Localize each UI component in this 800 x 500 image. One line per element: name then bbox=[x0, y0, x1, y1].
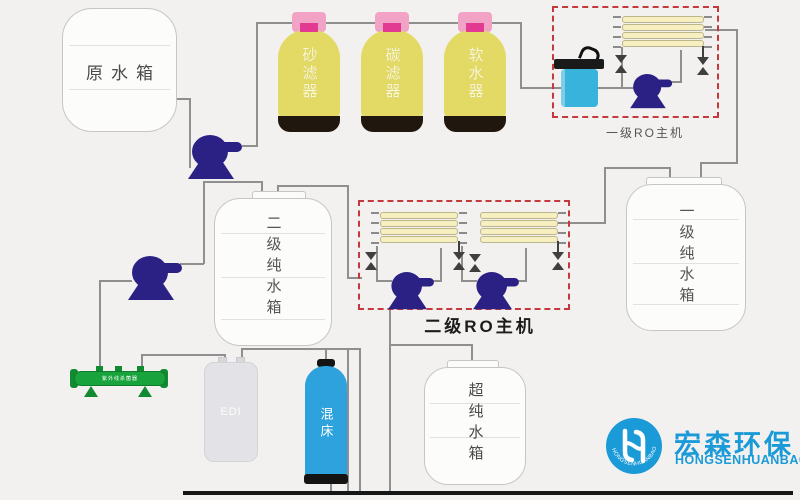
stage2-pure-tank-label: 二级纯水箱 bbox=[263, 215, 284, 320]
pipe bbox=[520, 22, 522, 88]
filter-cap bbox=[458, 12, 492, 32]
membrane-fitting bbox=[704, 16, 712, 48]
pipe bbox=[440, 248, 442, 281]
raw-water-tank-label: 原水箱 bbox=[63, 59, 176, 84]
mixed-bed-bottom-cap bbox=[304, 474, 348, 484]
ro1-membrane-bank bbox=[622, 16, 704, 47]
raw-water-tank: 原水箱 bbox=[62, 8, 177, 132]
carbon-filter-label: 碳滤器 bbox=[382, 47, 403, 101]
drain-line bbox=[183, 491, 793, 495]
pipe bbox=[141, 354, 225, 356]
valve-icon bbox=[468, 254, 482, 272]
valve-icon bbox=[551, 252, 565, 270]
softener-vessel: 软水器 bbox=[444, 12, 506, 132]
raw-water-pump bbox=[188, 135, 246, 179]
tank-seam bbox=[69, 89, 171, 90]
logo-mark: HONGSENHUANBAO bbox=[604, 416, 664, 476]
valve-icon bbox=[696, 57, 710, 75]
stage1-pure-tank: 一级纯水箱 bbox=[626, 184, 746, 331]
ro2-high-pressure-pump-b bbox=[473, 272, 522, 309]
pipe bbox=[277, 185, 349, 187]
stage1-pure-tank-label: 一级纯水箱 bbox=[676, 203, 697, 308]
pipe bbox=[566, 222, 606, 224]
ultra-pure-tank-label: 超纯水箱 bbox=[465, 382, 486, 466]
ultra-pure-tank: 超纯水箱 bbox=[424, 367, 526, 485]
pipe bbox=[99, 280, 101, 370]
ro-stage1-label: 一级RO主机 bbox=[595, 124, 695, 141]
filter-base bbox=[444, 116, 506, 132]
valve-icon bbox=[452, 252, 466, 270]
ro1-high-pressure-pump bbox=[630, 74, 675, 108]
pipe bbox=[203, 181, 205, 264]
pipe bbox=[525, 248, 527, 281]
mixed-bed-label: 混床 bbox=[317, 407, 336, 441]
pipe bbox=[256, 23, 258, 147]
carbon-filter-vessel: 碳滤器 bbox=[361, 12, 423, 132]
pipe bbox=[736, 29, 738, 164]
membrane-fitting bbox=[613, 16, 621, 48]
edi-label: EDI bbox=[220, 406, 241, 418]
stage2-pure-tank: 二级纯水箱 bbox=[214, 198, 332, 346]
uv-sterilizer-label: 紫外线杀菌器 bbox=[102, 375, 138, 382]
membrane-fitting bbox=[558, 212, 566, 244]
filter-base bbox=[361, 116, 423, 132]
ro2-high-pressure-pump-a bbox=[388, 272, 437, 309]
pipe bbox=[203, 181, 263, 183]
mixed-bed-column: 混床 bbox=[305, 366, 347, 482]
uv-leg bbox=[84, 386, 98, 397]
tank-seam bbox=[69, 45, 171, 46]
transfer-pump bbox=[128, 256, 186, 300]
precision-filter-cap bbox=[554, 59, 604, 69]
ro2-membrane-bank-b bbox=[480, 212, 558, 243]
pipe bbox=[359, 350, 361, 493]
sand-filter-vessel: 砂滤器 bbox=[278, 12, 340, 132]
ro2-membrane-bank-a bbox=[380, 212, 458, 243]
uv-leg bbox=[138, 386, 152, 397]
uv-sterilizer: 紫外线杀菌器 bbox=[74, 371, 166, 386]
pipe bbox=[604, 167, 606, 224]
precision-filter bbox=[561, 69, 598, 107]
ro-stage2-label: 二级RO主机 bbox=[390, 312, 570, 337]
pipe bbox=[700, 162, 738, 164]
filter-cap bbox=[375, 12, 409, 32]
pipe bbox=[347, 186, 349, 279]
edi-module: EDI bbox=[204, 362, 258, 462]
filter-cap bbox=[292, 12, 326, 32]
valve-icon bbox=[364, 252, 378, 270]
filter-base bbox=[278, 116, 340, 132]
pipe bbox=[347, 350, 349, 493]
membrane-fitting bbox=[371, 212, 379, 244]
sand-filter-label: 砂滤器 bbox=[299, 47, 320, 101]
pipe bbox=[604, 167, 671, 169]
valve-icon bbox=[614, 55, 628, 73]
pipe bbox=[241, 348, 361, 350]
process-diagram: 原水箱 砂滤器 碳滤器 软水器 一级RO主机 一级纯水箱 bbox=[0, 0, 800, 500]
softener-label: 软水器 bbox=[465, 47, 486, 101]
logo-company-name-en: HONGSENHUANBAO bbox=[675, 453, 800, 467]
membrane-fitting bbox=[459, 212, 467, 244]
pipe bbox=[389, 344, 473, 346]
